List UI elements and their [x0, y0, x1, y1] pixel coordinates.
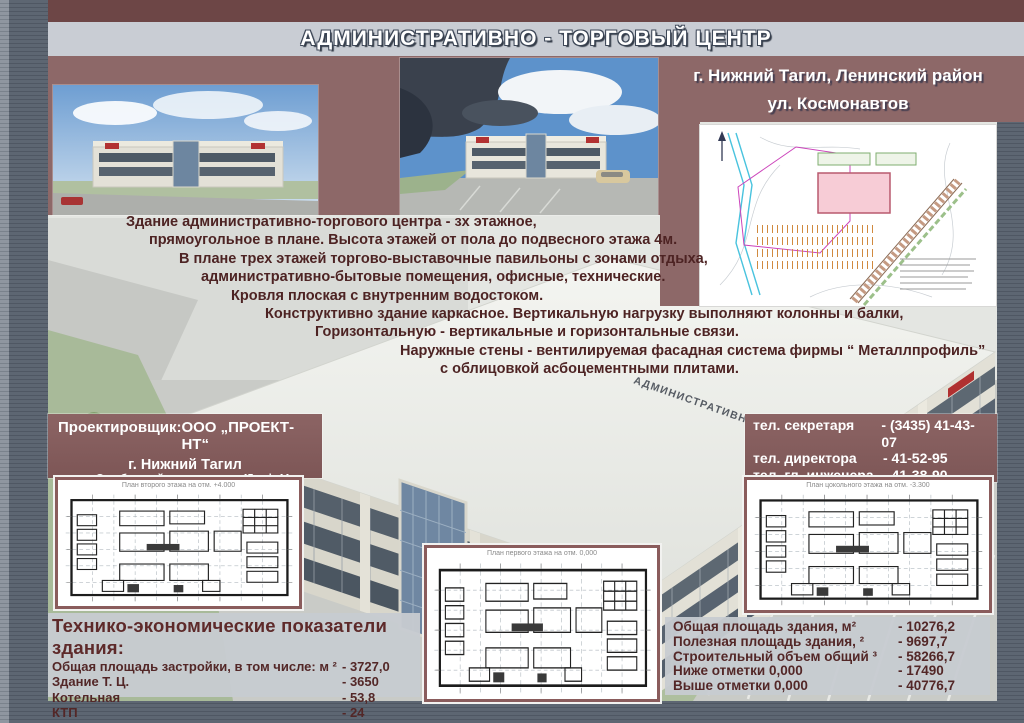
designer-city: г. Нижний Тагил	[48, 457, 322, 473]
description-line: В плане трех этажей торгово-выставочные …	[179, 250, 1024, 268]
area-row: Полезная площадь здания, ² - 9697,7	[673, 635, 990, 650]
location-line1: г. Нижний Тагил, Ленинский район	[662, 62, 1014, 90]
floor-plan-drawing	[58, 491, 299, 606]
designer-company: ООО „ПРОЕКТ-НТ“	[181, 419, 312, 453]
indicator-row: Здание Т. Ц. - 3650	[52, 674, 420, 689]
photo-exterior-left	[53, 85, 318, 215]
title-band: АДМИНИСТРАТИВНО - ТОРГОВЫЙ ЦЕНТР	[48, 22, 1024, 56]
contact-row: тел. секретаря - (3435) 41-43-07	[745, 417, 997, 450]
area-row: Выше отметки 0,000 - 40776,7	[673, 679, 990, 694]
photo-exterior-middle	[400, 58, 658, 215]
floor-plan-title: План первого этажа на отм. 0,000	[427, 550, 657, 559]
contact-row: тел. директора - 41-52-95	[745, 450, 997, 467]
floor-plan-title: План второго этажа на отм. +4.000	[58, 482, 299, 491]
description-line: прямоугольное в плане. Высота этажей от …	[149, 231, 1024, 249]
floor-plan-second: План второго этажа на отм. +4.000	[55, 477, 302, 609]
contacts-box: тел. секретаря - (3435) 41-43-07 тел. ди…	[745, 414, 997, 482]
building-description: Здание административно-торгового центра …	[0, 213, 1024, 379]
siteplan-building-footprint	[818, 173, 890, 213]
designer-box: Проектировщик: ООО „ПРОЕКТ-НТ“ г. Нижний…	[48, 414, 322, 478]
floor-plan-drawing	[747, 491, 989, 610]
description-line: Горизонтальную - вертикальные и горизонт…	[315, 323, 1024, 341]
area-row: Общая площадь здания, м² - 10276,2	[673, 620, 990, 635]
page-title: АДМИНИСТРАТИВНО - ТОРГОВЫЙ ЦЕНТР	[300, 27, 771, 51]
floor-plan-basement: План цокольного этажа на отм. -3.300	[744, 477, 992, 613]
description-line: Наружные стены - вентилируемая фасадная …	[400, 342, 1024, 360]
description-line: Здание административно-торгового центра …	[126, 213, 1024, 231]
designer-label: Проектировщик:	[58, 419, 181, 453]
description-line: с облицовкой асбоцементными плитами.	[440, 360, 1024, 378]
area-row: Строительный объем общий ³ - 58266,7	[673, 650, 990, 665]
description-line: административно-бытовые помещения, офисн…	[201, 268, 1024, 286]
floor-plan-title: План цокольного этажа на отм. -3.300	[747, 482, 989, 491]
description-line: Конструктивно здание каркасное. Вертикал…	[265, 305, 1024, 323]
areas-panel: Общая площадь здания, м² - 10276,2 Полез…	[665, 617, 990, 695]
location-line2: ул. Космонавтов	[662, 90, 1014, 118]
indicators-heading: Технико-экономические показатели здания:	[52, 615, 420, 659]
location-subtitle: г. Нижний Тагил, Ленинский район ул. Кос…	[662, 62, 1014, 118]
description-line: Кровля плоская с внутренним водостоком.	[231, 287, 1024, 305]
indicator-row: Котельная - 53,8	[52, 690, 420, 705]
floor-plan-first: План первого этажа на отм. 0,000	[424, 545, 660, 702]
area-row: Ниже отметки 0,000 - 17490	[673, 664, 990, 679]
floor-plan-drawing	[427, 559, 657, 699]
indicator-row: Общая площадь застройки, в том числе: м …	[52, 659, 420, 674]
indicator-row: КТП - 24	[52, 705, 420, 720]
poster-page: АДМИНИСТРАТИВНО-ТОРГОВЫЙ ЦЕНТР	[0, 0, 1024, 723]
header-top-bar	[48, 0, 1024, 22]
indicators-panel: Технико-экономические показатели здания:…	[48, 613, 420, 697]
